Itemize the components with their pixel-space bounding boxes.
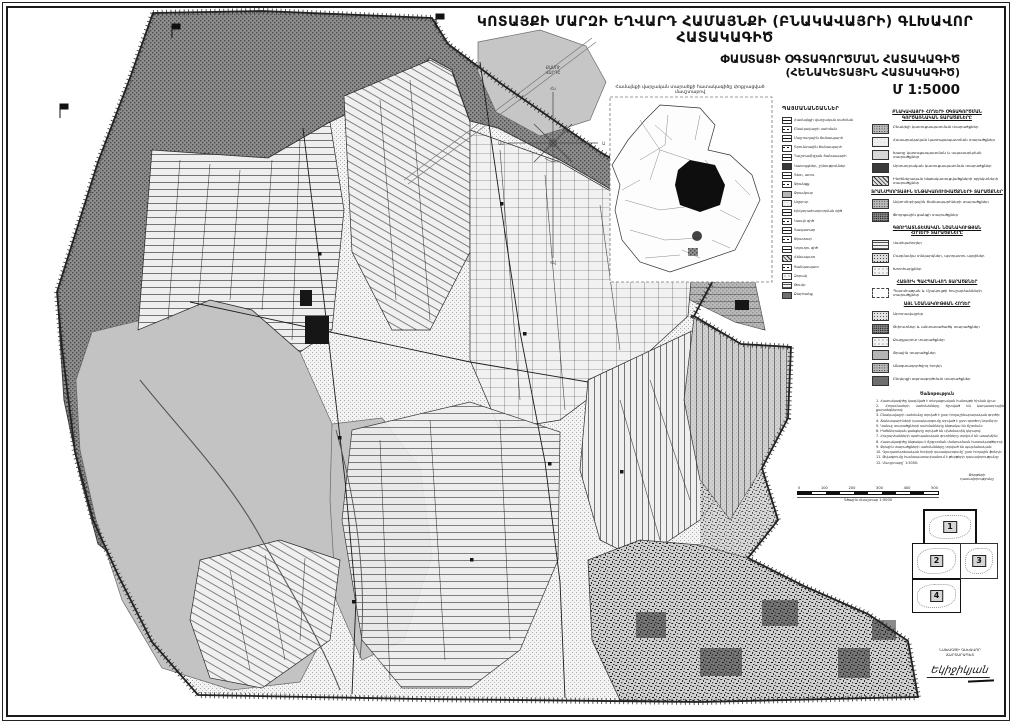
compass-label: ՔԱՄՈՒ ՎԱՐԴԸ [528,66,578,76]
svg-text:Հս: Հս [550,86,556,91]
legend-swatch-icon [782,292,792,299]
legend-mini-item: Էլեկտրահաղորդման գիծ [782,209,862,216]
legend-swatch-icon [782,264,792,271]
legend-mini-item: Քարհանք [782,292,862,299]
notes-lines: 1. Հատակագիծը կազմված է տեղագրական հանու… [866,399,1008,465]
legend-item: Խոտհարքներ [866,266,1008,276]
subtitle-line1: ՓԱՍՏԱՑԻ ՕԳՏԱԳՈՐԾՄԱՆ ՀԱՏԱԿԱԳԻԾ [630,52,960,66]
scalebar-tick: 400 [904,486,911,490]
legend-mini-item: Մայրուղային ճանապարհ [782,135,862,142]
inset-caption: Համայնքի վարչական տարածքի հատակագիծը փոք… [600,85,780,95]
legend-mini-label: Դաշտամիջյան ճանապարհ [794,155,847,159]
legend-item-label: Փողոցային ցանցի տարածքներ [893,212,958,217]
legend-mini-label: Գազատար [794,229,815,233]
legend-mini-label: Ջրանցք [794,183,809,187]
sheet-number: 4 [930,590,944,602]
legend-swatch-icon [872,376,889,386]
note-line: 8. Հատակագիծը ենթակա է ճշգրտման մանրամաս… [876,440,1004,444]
legend-swatch-icon [872,199,889,209]
legend-mini-label: Քարհանք [794,293,813,297]
note-line: 5. Կանաչ տարածքների սահմանները ենթակա են… [876,424,1004,428]
legend-swatch-icon [872,124,889,134]
legend-swatch-icon [872,324,889,334]
sheet-number: 2 [930,555,944,567]
scalebar-tick: 0 [798,486,800,490]
legend-mini-item: Գազատար [782,227,862,234]
note-line: 3. Բնակավայրի սահմանը տրված է ըստ հողաշի… [876,413,1004,417]
scalebar-tick: 300 [876,486,883,490]
note-line: 10. Գյուղատնտեսական հողերի դասակարգումը՝… [876,450,1004,454]
legend-swatch-icon [782,126,792,133]
legend-item-label: Խառը կառուցապատման և սպասարկման տարածքնե… [893,150,1008,160]
legend-mini-item: Բնակավայրի սահման [782,126,862,133]
legend-item-label: Ինժեներական ենթակառուցվածքների օբյեկտներ… [893,176,1008,186]
legend-mini-item: Աղբյուր [782,200,862,207]
legend-swatch-icon [872,337,889,347]
legend-swatch-icon [782,191,792,198]
legend-mini-item: Գետ, առու [782,172,862,179]
signature-name: Եկիջիկյան [927,665,993,678]
scalebar-bar [797,491,939,496]
legend-section-header-line: ՏՐԱՆՍՊՈՐՏԱՅԻՆ ԵՆԹԱԿԱՌՈՒՑՎԱԾՔՆԵՐԻ ՏԱՐԱԾՔՆ… [866,190,1008,196]
subtitle-line2: (ՀԵՆԱԿԵՏԱՅԻՆ ՀԱՏԱԿԱԳԻԾ) [630,66,960,79]
legend-swatch-icon [872,150,889,160]
legend-mini-item: Թումբ [782,282,862,289]
map-sheet: Հս Ա Հվ Ամ [0,0,1012,723]
inset-map [610,97,772,282]
scalebar-tick: 200 [849,486,856,490]
legend-section-header: ԱՅԼ ՆՇԱՆԱԿՈՒԹՅԱՆ ՀՈՂԵՐ [866,302,1008,308]
scalebar-tick: 100 [821,486,828,490]
legend-mini-label: Թումբ [794,284,805,288]
note-line: 11. Թվագրումը համապատասխանում է թերթերի … [876,455,1004,459]
legend-mini-item: Գրունտային ճանապարհ [782,145,862,152]
note-line: 1. Հատակագիծը կազմված է տեղագրական հանու… [876,399,1004,403]
legend-item: Անօգտագործվող հողեր [866,363,1008,373]
scalebar: 0100200300400500 Գծային մասշտաբ 1:5000 [797,486,939,502]
notes-title: Ծանոթություն [866,392,1008,397]
legend-item: Արտադրական կառուցապատման տարածքներ [866,163,1008,173]
legend-mini-label: Համայնքի վարչական սահման [794,119,853,123]
legend-swatch-icon [872,240,889,250]
legend-section-header-line: ՀԱՏՈՒԿ ՊԱՀՊԱՆՎՈՂ ՏԱՐԱԾՔՆԵՐ [866,280,1008,286]
legend-swatch-icon [872,350,889,360]
note-line: 7. Հուշարձանների պահպանական գոտիները տրվ… [876,434,1004,438]
legend-item-label: Թփուտներ և անտառածածկ տարածքներ [893,324,980,329]
legend-swatch-icon [782,163,792,170]
legend-mini-item: Ձորակ [782,273,862,280]
legend-swatch-icon [872,163,889,173]
legend-mini-label: Կառույցներ, շինություններ [794,165,845,169]
legend-swatch-icon [782,209,792,216]
legend-swatch-icon [782,255,792,262]
legend-item: Ինժեներական ենթակառուցվածքների օբյեկտներ… [866,176,1008,186]
legend-swatch-icon [872,266,889,276]
legend-mini-item: Ջրամբար [782,191,862,198]
sheet-number: 1 [943,521,957,533]
legend-mini-list: Համայնքի վարչական սահմանԲնակավայրի սահմա… [782,117,862,299]
legend-item-label: Վարելահողեր [893,240,922,245]
legend-swatch-icon [872,288,889,298]
legend-item: Փողոցային ցանցի տարածքներ [866,212,1008,222]
legend-main-column: ԲՆԱԿԱՎԱՅՐԻ ՀՈՂԵՐԻ ՕԳՏԱԳՈՐԾՄԱՆԳՈՐԾԱՌՆԱԿԱՆ… [866,106,1008,466]
legend-item: Պատմության և մշակույթի հուշարձանների տար… [866,288,1008,298]
legend-item-label: Արտադրական կառուցապատման տարածքներ [893,163,991,168]
legend-item-label: Արոտավայրեր [893,311,923,316]
legend-item-label: Ընդերքի օգտագործման տարածքներ [893,376,971,381]
legend-mini-item: Կապի գիծ [782,218,862,225]
scalebar-caption: Գծային մասշտաբ 1:5000 [797,497,939,503]
legend-section-header: ԲՆԱԿԱՎԱՅՐԻ ՀՈՂԵՐԻ ՕԳՏԱԳՈՐԾՄԱՆԳՈՐԾԱՌՆԱԿԱՆ… [866,110,1008,121]
legend-swatch-icon [782,135,792,142]
legend-mini-label: Ձորակ [794,275,807,279]
legend-item: Ավտոմոբիլային ճանապարհների տարածքներ [866,199,1008,209]
svg-text:Ա: Ա [602,141,605,146]
legend-swatch-icon [782,282,792,289]
svg-text:Հվ: Հվ [550,260,556,265]
legend-swatch-icon [872,176,889,186]
legend-item: Ջրային տարածքներ [866,350,1008,360]
legend-swatch-icon [872,311,889,321]
legend-item-label: Պատմության և մշակույթի հուշարձանների տար… [893,288,1008,298]
legend-mini-label: Աղբյուր [794,201,808,205]
legend-mini-label: Կոյուղու գիծ [794,247,818,251]
note-line: 4. Ճանապարհների դասակարգումը տրված է ըստ… [876,419,1004,423]
legend-section-header: ԳՅՈՒՂԱՏՆՏԵՍԱԿԱՆ ՆՇԱՆԱԿՈՒԹՅԱՆՀՈՂԵՐԻ ՏԱՐԱԾ… [866,226,1008,237]
legend-item: Բազմամյա տնկարկներ, պտղատու այգիներ [866,253,1008,263]
legend-item: Թփուտներ և անտառածածկ տարածքներ [866,324,1008,334]
legend-mini-label: Ցանկապատ [794,266,819,270]
scalebar-ticks: 0100200300400500 [797,486,939,490]
sheet-index-caption: Թերթերի դասավորությունը [948,473,1006,481]
note-line: 9. Ջրային տարածքների սահմանները տրված են… [876,445,1004,449]
legend-swatch-icon [782,227,792,234]
legend-mini-label: Հենապատ [794,256,815,260]
sheet-box-3: 3 [960,543,998,579]
scalebar-tick: 500 [931,486,938,490]
legend-swatch-icon [782,246,792,253]
legend-swatch-icon [782,273,792,280]
legend-swatch-icon [872,137,889,147]
legend-item: Քարքարոտ տարածքներ [866,337,1008,347]
legend-mini-label: Բնակավայրի սահման [794,128,837,132]
signature-org-line2: ՃԱՐՏԱՐԱՊԵՏ [916,653,1004,658]
legend-item-label: Խոտհարքներ [893,266,921,271]
legend-swatch-icon [872,253,889,263]
note-line: 12. Մասշտաբը՝ 1:5000։ [876,461,1004,465]
legend-swatch-icon [782,117,792,124]
legend-swatch-icon [782,181,792,188]
sheet-index: 1 2 3 4 [908,506,1006,620]
legend-swatch-icon [782,218,792,225]
svg-text:Ամ: Ամ [498,141,504,146]
legend-section-header: ՀԱՏՈՒԿ ՊԱՀՊԱՆՎՈՂ ՏԱՐԱԾՔՆԵՐ [866,280,1008,286]
legend-item: Հասարակական կառուցապատման տարածքներ [866,137,1008,147]
sheet-number: 3 [972,555,986,567]
legend-mini-label: Գետ, առու [794,174,814,178]
sheet-box-4: 4 [912,579,961,613]
legend-mini-item: Կառույցներ, շինություններ [782,163,862,170]
legend-mini-item: Ցանկապատ [782,264,862,271]
legend-mini-item: Համայնքի վարչական սահման [782,117,862,124]
legend-mini-item: Ջրանցք [782,181,862,188]
legend-item-label: Անօգտագործվող հողեր [893,363,942,368]
legend-item: Ընդերքի օգտագործման տարածքներ [866,376,1008,386]
note-line: 2. Հողամասերի սահմանները ճշտված են կադաս… [876,404,1004,413]
page-title: ԿՈՏԱՅՔԻ ՄԱՐԶԻ ԵՂՎԱՐԴ ՀԱՄԱՅՆՔԻ (ԲՆԱԿԱՎԱՅՐ… [442,14,1008,46]
legend-item: Խառը կառուցապատման և սպասարկման տարածքնե… [866,150,1008,160]
legend-mini-item: Դաշտամիջյան ճանապարհ [782,154,862,161]
legend-item-label: Բազմամյա տնկարկներ, պտղատու այգիներ [893,253,985,258]
legend-swatch-icon [782,172,792,179]
sheet-box-2: 2 [912,543,961,579]
legend-mini-label: Մայրուղային ճանապարհ [794,137,843,141]
legend-item-label: Քարքարոտ տարածքներ [893,337,945,342]
legend-item: Արոտավայրեր [866,311,1008,321]
legend-item-label: Ավտոմոբիլային ճանապարհների տարածքներ [893,199,989,204]
legend-mini-item: Կոյուղու գիծ [782,246,862,253]
legend-section-header-line: ԳՈՐԾԱՌՆԱԿԱՆ ՏԱՐԱԾՔՆԵՐԸ [866,116,1008,122]
legend-sections: ԲՆԱԿԱՎԱՅՐԻ ՀՈՂԵՐԻ ՕԳՏԱԳՈՐԾՄԱՆԳՈՐԾԱՌՆԱԿԱՆ… [866,110,1008,386]
sheet-box-1: 1 [923,509,977,545]
legend-swatch-icon [782,200,792,207]
legend-swatch-icon [782,145,792,152]
legend-section-header: ՏՐԱՆՍՊՈՐՏԱՅԻՆ ԵՆԹԱԿԱՌՈՒՑՎԱԾՔՆԵՐԻ ՏԱՐԱԾՔՆ… [866,190,1008,196]
legend-mini-item: Ջրատար [782,236,862,243]
legend-mini-column: ՊԱՅՄԱՆԱՆՇԱՆՆԵՐ Համայնքի վարչական սահմանԲ… [782,106,862,301]
legend-mini-label: Ջրատար [794,238,812,242]
legend-mini-label: Կապի գիծ [794,220,814,224]
legend-item-label: Ջրային տարածքներ [893,350,936,355]
signature-block: ՆԱԽԱԳԾԻ ԳԼԽԱՎՈՐ ՃԱՐՏԱՐԱՊԵՏ Եկիջիկյան [916,648,1004,682]
legend-item: Բնակելի կառուցապատման տարածքներ [866,124,1008,134]
legend-swatch-icon [782,236,792,243]
legend-section-header-line: ՀՈՂԵՐԻ ՏԱՐԱԾՔՆԵՐԸ [866,231,1008,237]
legend-mini-heading: ՊԱՅՄԱՆԱՆՇԱՆՆԵՐ [782,106,862,112]
legend-mini-label: Ջրամբար [794,192,813,196]
legend-item-label: Բնակելի կառուցապատման տարածքներ [893,124,978,129]
legend-mini-item: Հենապատ [782,255,862,262]
legend-item-label: Հասարակական կառուցապատման տարածքներ [893,137,995,142]
legend-swatch-icon [872,363,889,373]
legend-swatch-icon [782,154,792,161]
notes-block: Ծանոթություն 1. Հատակագիծը կազմված է տեղ… [866,392,1008,465]
legend-section-header-line: ԱՅԼ ՆՇԱՆԱԿՈՒԹՅԱՆ ՀՈՂԵՐ [866,302,1008,308]
legend-mini-label: Գրունտային ճանապարհ [794,146,842,150]
note-line: 6. Ինժեներական ցանցերը տրված են սխեմատիկ… [876,429,1004,433]
legend-swatch-icon [872,212,889,222]
legend-item: Վարելահողեր [866,240,1008,250]
legend-mini-label: Էլեկտրահաղորդման գիծ [794,210,842,214]
